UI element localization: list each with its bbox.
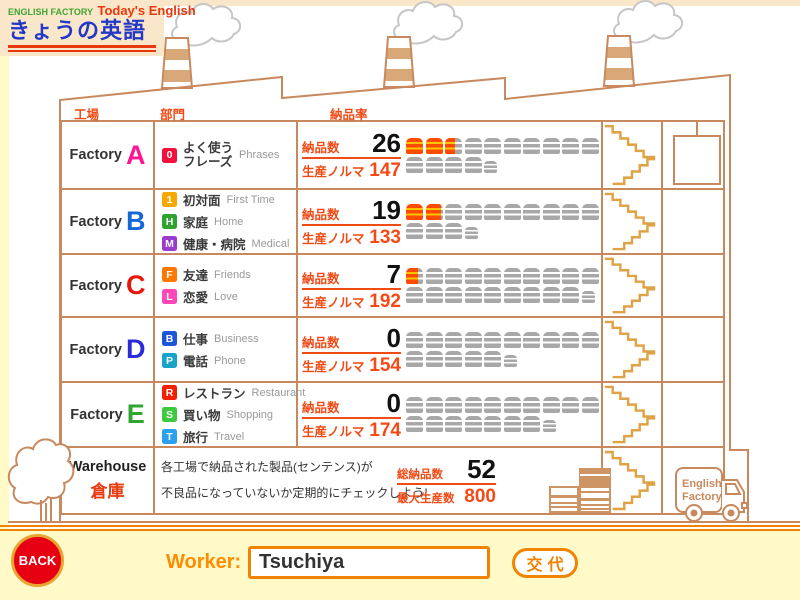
quota-value: 800 (464, 487, 496, 506)
quota-label: 生産ノルマ (302, 228, 365, 247)
truck-icon-empty (465, 416, 482, 432)
factory-row-e[interactable]: FactoryERレストランRestaurantS買い物ShoppingT旅行T… (62, 383, 723, 448)
quota-row: 生産ノルマ147 (302, 161, 401, 180)
delivery-bar-row2 (406, 351, 599, 367)
quota-label: 生産ノルマ (302, 292, 365, 311)
truck-icon-empty (523, 416, 540, 432)
factory-name: FactoryA (62, 122, 155, 188)
delivered-value: 19 (372, 197, 401, 223)
category-name-jp: 買い物 (183, 405, 221, 424)
truck-icon-full (406, 138, 423, 154)
col-header-delivery-rate: 納品率 (330, 104, 368, 123)
category-badge: R (162, 385, 177, 400)
truck-icon-empty (406, 287, 423, 303)
truck-icon-empty (543, 138, 560, 154)
elevator-shaft (663, 255, 723, 316)
truck-icon-empty (426, 351, 443, 367)
category-name-jp: 仕事 (183, 329, 208, 348)
quota-label: 生産ノルマ (302, 421, 365, 440)
delivered-value: 52 (467, 456, 496, 482)
elevator-shaft (663, 318, 723, 381)
delivery-bar-row2 (406, 287, 599, 303)
truck-icon-small (484, 161, 497, 173)
category-badge: 0 (162, 148, 177, 163)
category-badge: 1 (162, 192, 177, 207)
factory-categories: 1初対面First TimeH家庭HomeM健康・病院Medical (155, 190, 298, 253)
left-strip (0, 6, 9, 531)
stairwell (603, 318, 663, 381)
truck-icon-empty (543, 268, 560, 284)
category-item: H家庭Home (162, 212, 296, 231)
page-title: きょうの英語 (8, 19, 164, 43)
factory-categories: B仕事BusinessP電話Phone (155, 318, 298, 381)
truck-icon-empty (426, 223, 443, 239)
truck-icon-empty (504, 397, 521, 413)
factory-categories: 0よく使うフレーズPhrases (155, 122, 298, 188)
category-item: RレストランRestaurant (162, 383, 296, 402)
category-name-jp: 健康・病院 (183, 234, 246, 253)
logo-panel: ENGLISH FACTORY Today's English きょうの英語 (0, 0, 164, 56)
stairs-icon (603, 383, 661, 446)
truck-partial-fill (445, 138, 455, 154)
factory-row-b[interactable]: FactoryB1初対面First TimeH家庭HomeM健康・病院Medic… (62, 190, 723, 255)
category-badge: B (162, 331, 177, 346)
truck-icon-empty (445, 416, 462, 432)
category-name-jp: 友達 (183, 265, 208, 284)
truck-icon-empty (504, 138, 521, 154)
delivery-bars (406, 332, 599, 367)
truck-icon-empty (504, 332, 521, 348)
truck-icon-empty (445, 204, 462, 220)
truck-icon-empty (582, 268, 599, 284)
category-item: F友達Friends (162, 265, 296, 284)
truck-icon-empty (465, 204, 482, 220)
truck-icon-empty (445, 397, 462, 413)
truck-icon-empty (426, 157, 443, 173)
delivery-bars (406, 268, 599, 303)
delivery-rate-cell: 納品数7生産ノルマ192 (298, 255, 603, 316)
footer-divider-line-2 (0, 529, 800, 531)
factory-word: Factory (70, 407, 122, 423)
col-header-factory: 工場 (74, 104, 99, 123)
truck-icon-empty (543, 204, 560, 220)
factory-letter: E (127, 401, 145, 428)
category-badge: S (162, 407, 177, 422)
stairs-icon (603, 255, 661, 316)
category-name-en: Phone (214, 355, 246, 367)
quota-label: 最大生産数 (397, 490, 455, 506)
category-name-en: Friends (214, 269, 251, 281)
quota-value: 133 (369, 228, 401, 247)
delivery-bars (406, 138, 599, 173)
truck-icon-empty (426, 416, 443, 432)
factory-letter: A (126, 142, 146, 169)
factory-word: Factory (70, 214, 122, 230)
truck-icon-partial (406, 268, 423, 284)
category-name-jp: 家庭 (183, 212, 208, 231)
delivered-label: 納品数 (302, 204, 340, 223)
delivery-rate-cell: 納品数0生産ノルマ154 (298, 318, 603, 381)
truck-icon-empty (582, 397, 599, 413)
delivered-row: 納品数0 (302, 325, 401, 351)
truck-icon-empty (465, 397, 482, 413)
category-name-en: Business (214, 333, 259, 345)
delivered-label: 総納品数 (397, 466, 443, 482)
factory-name: FactoryE (62, 383, 155, 446)
truck-icon-empty (484, 416, 501, 432)
delivery-bar-row1 (406, 332, 599, 348)
category-badge: F (162, 267, 177, 282)
delivery-stats: 納品数0生産ノルマ154 (302, 325, 401, 375)
worker-name-input[interactable] (248, 546, 490, 579)
stairs-icon (603, 448, 661, 513)
factory-letter: C (126, 272, 146, 299)
factory-row-d[interactable]: FactoryDB仕事BusinessP電話Phone納品数0生産ノルマ154 (62, 318, 723, 383)
smoke-clouds (172, 1, 682, 45)
category-badge: T (162, 429, 177, 444)
warehouse-name: Warehouse倉庫 (62, 448, 155, 513)
truck-icon-empty (465, 157, 482, 173)
quota-value: 154 (369, 356, 401, 375)
delivery-stats: 納品数0生産ノルマ174 (302, 390, 401, 440)
truck-icon-empty (484, 268, 501, 284)
category-item: L恋愛Love (162, 287, 296, 306)
stairs-icon (603, 190, 661, 253)
elevator-shaft (663, 190, 723, 253)
category-name-jp: よく使うフレーズ (183, 141, 233, 170)
quota-label: 生産ノルマ (302, 161, 365, 180)
truck-icon-empty (406, 157, 423, 173)
category-item: P電話Phone (162, 351, 296, 370)
truck-icon-small (543, 420, 556, 432)
delivered-label: 納品数 (302, 397, 340, 416)
title-underline-2 (8, 50, 156, 52)
truck-icon-empty (484, 397, 501, 413)
quota-value: 147 (369, 161, 401, 180)
footer-divider-line (0, 525, 800, 527)
category-name-en: Travel (214, 431, 244, 443)
truck-icon-empty (465, 287, 482, 303)
delivery-bar-row2 (406, 416, 599, 432)
category-name-en: Home (214, 216, 243, 228)
elevator-shaft (663, 383, 723, 446)
category-badge: H (162, 214, 177, 229)
category-item: B仕事Business (162, 329, 296, 348)
truck-icon-empty (543, 287, 560, 303)
truck-partial-fill (426, 204, 441, 220)
truck-icon-empty (426, 332, 443, 348)
delivery-bar-row2 (406, 157, 599, 173)
truck-icon-empty (582, 332, 599, 348)
category-name-jp: 初対面 (183, 190, 221, 209)
delivered-value: 0 (387, 325, 401, 351)
truck-icon-empty (445, 287, 462, 303)
category-badge: P (162, 353, 177, 368)
delivery-bars (406, 397, 599, 432)
quota-row: 生産ノルマ154 (302, 356, 401, 375)
warehouse-row[interactable]: Warehouse倉庫各工場で納品された製品(センテンス)が不良品になっていない… (62, 448, 723, 513)
factory-word: Factory (70, 278, 122, 294)
truck-icon-empty (426, 287, 443, 303)
delivered-label: 納品数 (302, 137, 340, 156)
elevator-shaft (663, 122, 723, 188)
factory-name: FactoryC (62, 255, 155, 316)
quota-row: 生産ノルマ192 (302, 292, 401, 311)
truck-icon-empty (406, 223, 423, 239)
factory-letter: D (126, 336, 146, 363)
factory-name: FactoryD (62, 318, 155, 381)
stairs-icon (603, 318, 661, 381)
factory-row-a[interactable]: FactoryA0よく使うフレーズPhrases納品数26生産ノルマ147 (62, 122, 723, 190)
truck-icon-empty (523, 332, 540, 348)
stairwell (603, 190, 663, 253)
factory-name: FactoryB (62, 190, 155, 253)
truck-icon-small (504, 355, 517, 367)
truck-icon-empty (504, 204, 521, 220)
category-name-jp: 恋愛 (183, 287, 208, 306)
truck-icon-empty (582, 138, 599, 154)
truck-icon-empty (465, 138, 482, 154)
title-underline (8, 45, 156, 48)
delivery-bar-row1 (406, 397, 599, 413)
delivery-rate-cell: 納品数26生産ノルマ147 (298, 122, 603, 188)
stairwell (603, 255, 663, 316)
col-header-department: 部門 (160, 104, 185, 123)
delivered-value: 7 (387, 261, 401, 287)
category-badge: L (162, 289, 177, 304)
delivery-bar-row1 (406, 268, 599, 284)
category-name-en: Phrases (239, 149, 279, 161)
delivery-stats: 納品数26生産ノルマ147 (302, 130, 401, 180)
category-name-en: Shopping (227, 409, 274, 421)
truck-icon-empty (445, 268, 462, 284)
truck-icon-empty (406, 332, 423, 348)
stairwell (603, 383, 663, 446)
truck-icon-empty (445, 351, 462, 367)
quota-row: 最大生産数800 (397, 487, 496, 506)
factory-letter: B (126, 208, 146, 235)
truck-icon-empty (465, 268, 482, 284)
truck-icon-small (465, 227, 478, 239)
factory-word: Factory (70, 342, 122, 358)
quota-row: 生産ノルマ174 (302, 421, 401, 440)
truck-icon-empty (523, 138, 540, 154)
category-name-jp: 電話 (183, 351, 208, 370)
delivered-row: 納品数0 (302, 390, 401, 416)
truck-icon-empty (406, 416, 423, 432)
category-name-jp: 旅行 (183, 427, 208, 446)
truck-icon-empty (582, 204, 599, 220)
app-screen: ENGLISH FACTORY Today's English きょうの英語 工… (0, 0, 800, 600)
truck-icon-empty (562, 287, 579, 303)
category-badge: M (162, 236, 177, 251)
factory-row-c[interactable]: FactoryCF友達FriendsL恋愛Love納品数7生産ノルマ192 (62, 255, 723, 318)
truck-icon-empty (484, 351, 501, 367)
truck-icon-empty (465, 332, 482, 348)
delivery-bar-row1 (406, 204, 599, 220)
truck-icon-empty (523, 268, 540, 284)
delivered-label: 納品数 (302, 268, 340, 287)
delivery-rate-cell: 納品数0生産ノルマ174 (298, 383, 603, 446)
quota-value: 192 (369, 292, 401, 311)
delivery-bars (406, 204, 599, 239)
warehouse-description: 各工場で納品された製品(センテンス)が不良品になっていないか定期的にチェックしよ… (161, 455, 393, 505)
category-name-en: First Time (227, 194, 275, 206)
delivered-row: 納品数26 (302, 130, 401, 156)
truck-icon-empty (406, 351, 423, 367)
delivery-rate-cell: 納品数19生産ノルマ133 (298, 190, 603, 253)
truck-icon-empty (562, 268, 579, 284)
truck-icon-empty (465, 351, 482, 367)
delivered-row: 総納品数52 (397, 456, 496, 482)
delivery-stats: 納品数7生産ノルマ192 (302, 261, 401, 311)
truck-icon-partial (445, 138, 462, 154)
truck-icon-partial (426, 204, 443, 220)
truck-icon-empty (426, 397, 443, 413)
truck-icon-empty (484, 287, 501, 303)
quota-row: 生産ノルマ133 (302, 228, 401, 247)
quota-label: 生産ノルマ (302, 356, 365, 375)
product-name: Today's English (97, 3, 195, 18)
elevator-shaft (663, 448, 723, 513)
brand-line: ENGLISH FACTORY Today's English (8, 4, 164, 19)
warehouse-name-jp: 倉庫 (91, 477, 125, 502)
category-name-en: Love (214, 291, 238, 303)
delivered-label: 納品数 (302, 332, 340, 351)
delivered-row: 納品数7 (302, 261, 401, 287)
truck-icon-empty (504, 416, 521, 432)
brand-name: ENGLISH FACTORY (8, 7, 93, 17)
truck-icon-empty (523, 397, 540, 413)
delivered-row: 納品数19 (302, 197, 401, 223)
category-item: M健康・病院Medical (162, 234, 296, 253)
truck-icon-empty (543, 397, 560, 413)
truck-icon-empty (406, 397, 423, 413)
truck-icon-empty (523, 204, 540, 220)
category-name-en: Medical (252, 238, 290, 250)
category-item: 1初対面First Time (162, 190, 296, 209)
delivery-bar-row1 (406, 138, 599, 154)
truck-icon-full (406, 204, 423, 220)
truck-icon-empty (523, 287, 540, 303)
truck-icon-empty (504, 268, 521, 284)
truck-icon-empty (504, 287, 521, 303)
truck-icon-empty (562, 397, 579, 413)
truck-icon-empty (445, 157, 462, 173)
chimneys (162, 36, 634, 88)
truck-icon-empty (484, 332, 501, 348)
truck-icon-empty (562, 204, 579, 220)
worker-label: Worker: (166, 551, 241, 574)
truck-icon-empty (484, 138, 501, 154)
factory-categories: RレストランRestaurantS買い物ShoppingT旅行Travel (155, 383, 298, 446)
truck-icon-empty (426, 268, 443, 284)
category-name-jp: レストラン (183, 383, 246, 402)
truck-icon-small (582, 291, 595, 303)
category-item: 0よく使うフレーズPhrases (162, 141, 296, 170)
truck-partial-fill (406, 268, 418, 284)
warehouse-name-en: Warehouse (69, 459, 147, 476)
truck-icon-empty (543, 332, 560, 348)
stairs-icon (603, 122, 661, 188)
truck-icon-empty (484, 204, 501, 220)
truck-icon-empty (445, 223, 462, 239)
delivered-value: 0 (387, 390, 401, 416)
delivered-value: 26 (372, 130, 401, 156)
truck-icon-empty (445, 332, 462, 348)
factory-word: Factory (70, 147, 122, 163)
category-item: T旅行Travel (162, 427, 296, 446)
factory-categories: F友達FriendsL恋愛Love (155, 255, 298, 316)
factory-table: FactoryA0よく使うフレーズPhrases納品数26生産ノルマ147Fac… (60, 120, 725, 515)
stairwell (603, 122, 663, 188)
delivery-bar-row2 (406, 223, 599, 239)
delivery-stats: 納品数19生産ノルマ133 (302, 197, 401, 247)
stairwell (603, 448, 663, 513)
delivery-stats: 総納品数52最大生産数800 (397, 456, 496, 506)
truck-icon-empty (562, 138, 579, 154)
truck-icon-empty (562, 332, 579, 348)
change-worker-button[interactable]: 交代 (512, 548, 578, 578)
quota-value: 174 (369, 421, 401, 440)
category-item: S買い物Shopping (162, 405, 296, 424)
warehouse-info: 各工場で納品された製品(センテンス)が不良品になっていないか定期的にチェックしよ… (155, 448, 603, 513)
truck-icon-full (426, 138, 443, 154)
back-button[interactable]: BACK (11, 534, 64, 587)
